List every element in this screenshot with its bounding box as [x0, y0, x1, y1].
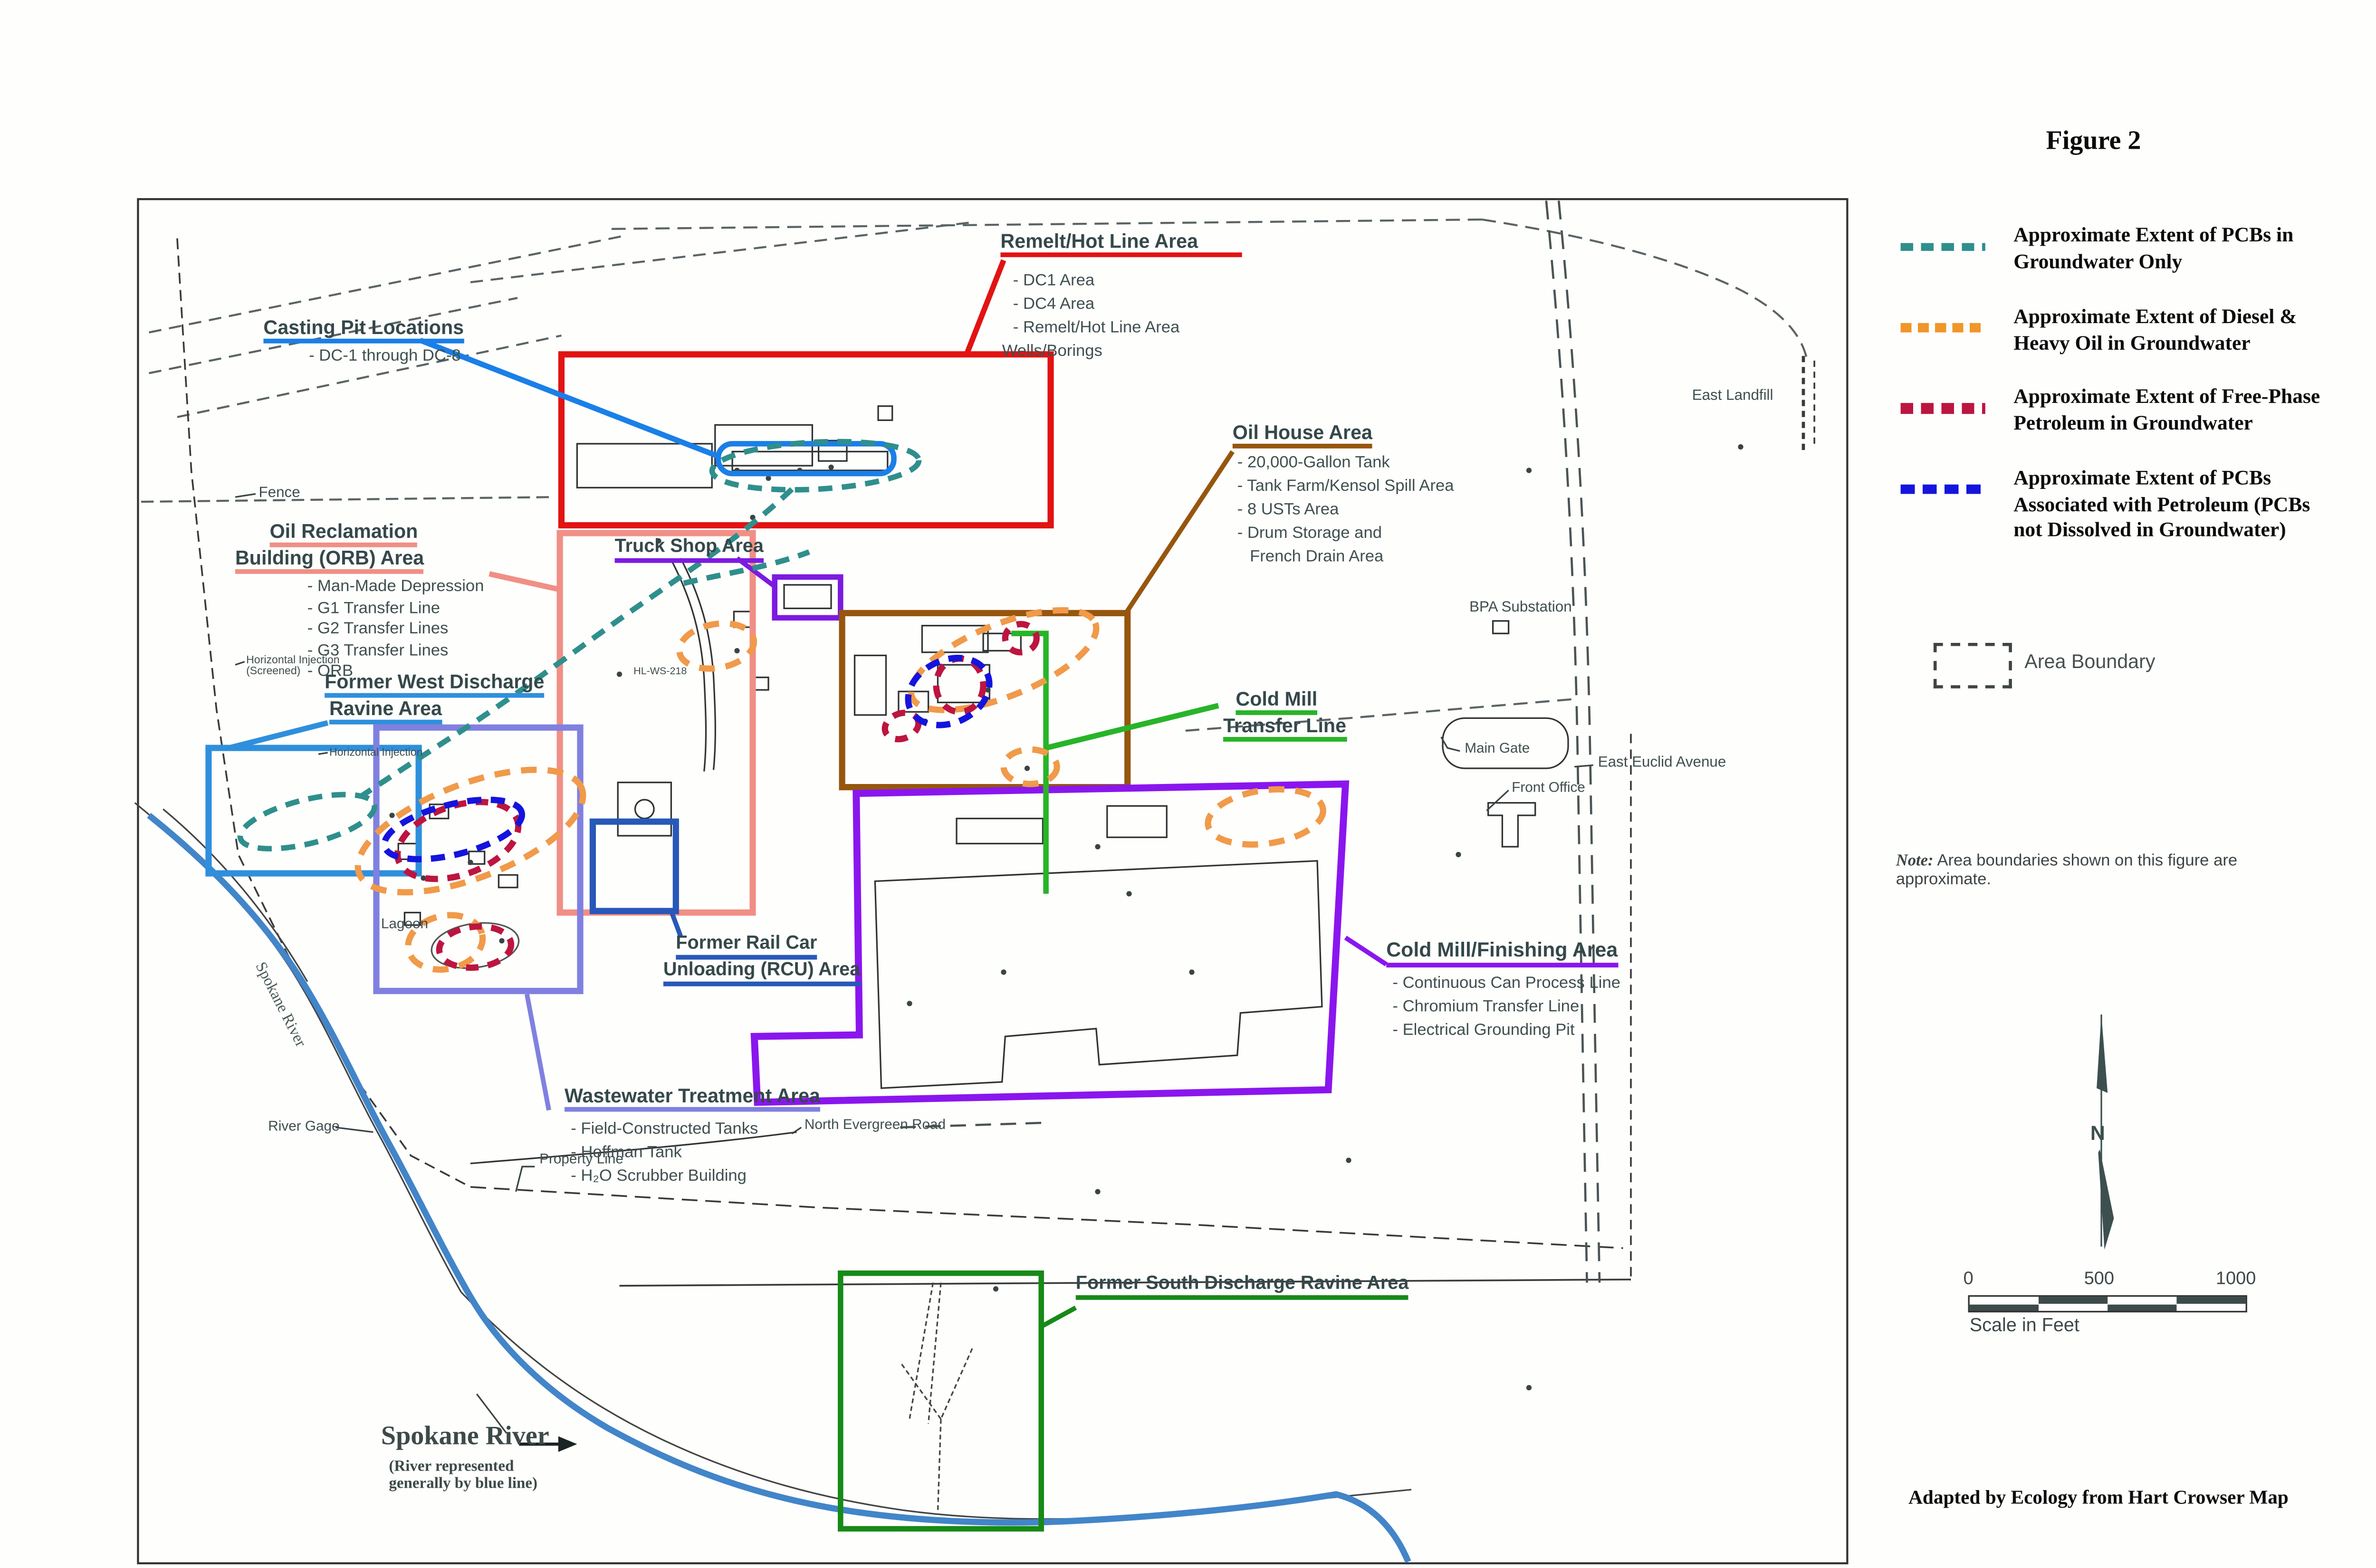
label-cold-mill-finishing: Cold Mill/Finishing Area: [1386, 939, 1618, 967]
map-border: [138, 199, 1847, 1563]
label-orb-line2: Building (ORB) Area: [235, 547, 424, 574]
label-cmt-line1: Cold Mill: [1236, 688, 1317, 716]
label-river-note: (River representedgenerally by blue line…: [389, 1458, 537, 1493]
legend-swatch-diesel: [1901, 323, 1985, 333]
cold-mill-transfer-line: [1012, 633, 1219, 894]
bullets-remelt: - DC1 Area - DC4 Area - Remelt/Hot Line …: [1013, 270, 1180, 364]
label-truck-shop: Truck Shop Area: [615, 536, 764, 563]
note-prefix: Note:: [1896, 853, 1934, 870]
orb-area-box: [560, 533, 753, 913]
property-lines: [177, 239, 1814, 1286]
label-horizontal-injection-2: Horizontal Injection: [329, 748, 422, 759]
plume-diesel-heavy-oil: [342, 590, 1326, 976]
river-banks: [135, 803, 1411, 1519]
label-south-discharge: Former South Discharge Ravine Area: [1076, 1273, 1409, 1300]
legend-swatch-free-phase: [1901, 403, 1985, 414]
north-label: N: [2090, 1123, 2105, 1144]
label-bpa-substation: BPA Substation: [1469, 601, 1572, 616]
legend-item-diesel: Approximate Extent of Diesel &Heavy Oil …: [2013, 304, 2376, 356]
legend-swatch-pcbs-petroleum: [1901, 485, 1985, 494]
site-roads: [470, 558, 1568, 1164]
legend-item-pcbs-petroleum: Approximate Extent of PCBsAssociated wit…: [2013, 466, 2376, 543]
label-hl-ws-218: HL-WS-218: [633, 668, 687, 679]
label-orb-line1: Oil Reclamation: [270, 521, 418, 548]
bullets-casting-pit: - DC-1 through DC-8: [309, 346, 461, 365]
label-river-gage: River Gage: [268, 1119, 339, 1134]
legend-item-pcbs-groundwater: Approximate Extent of PCBs inGroundwater…: [2013, 223, 2376, 275]
south-ravine-sketch: [902, 1282, 973, 1513]
remelt-hot-line-box: [561, 354, 1051, 526]
figure-title: Figure 2: [2007, 125, 2180, 157]
label-spokane-river: Spokane River: [381, 1421, 549, 1452]
label-west-line1: Former West Discharge: [325, 671, 544, 698]
label-rcu-line2: Unloading (RCU) Area: [663, 960, 860, 986]
label-west-line2: Ravine Area: [329, 698, 442, 725]
label-fence: Fence: [259, 486, 300, 502]
label-lagoon: Lagoon: [381, 918, 428, 932]
label-casting-pit: Casting Pit Locations: [263, 317, 464, 344]
bullets-oil-house: - 20,000-Gallon Tank- Tank Farm/Kensol S…: [1237, 451, 1454, 569]
south-discharge-box: [841, 1273, 1041, 1529]
legend-swatch-pcbs-groundwater: [1901, 243, 1985, 251]
credit-line: Adapted by Ecology from Hart Crowser Map: [1908, 1486, 2289, 1510]
scale-tick-500: 500: [2084, 1270, 2114, 1289]
area-boundary-swatch: [1934, 643, 2012, 688]
label-front-office: Front Office: [1512, 781, 1585, 795]
scale-label: Scale in Feet: [1970, 1316, 2079, 1336]
bullets-cold-mill-finishing: - Continuous Can Process Line - Chromium…: [1392, 972, 1620, 1043]
bullets-wastewater: - Field-Constructed Tanks- Hoffman Tank …: [571, 1118, 758, 1189]
label-east-landfill: East Landfill: [1692, 389, 1773, 404]
well-dots: [389, 444, 1743, 1390]
figure-2-site-map: Casting Pit Locations - DC-1 through DC-…: [0, 0, 2376, 1568]
scale-bar: [1968, 1295, 2247, 1312]
label-oil-house: Oil House Area: [1233, 422, 1372, 449]
map-note: Note: Area boundaries shown on this figu…: [1896, 851, 2335, 889]
label-east-euclid-avenue: East Euclid Avenue: [1598, 756, 1726, 772]
label-main-gate: Main Gate: [1465, 742, 1530, 756]
casting-pit-ring: [718, 444, 894, 474]
area-boundary-label: Area Boundary: [2024, 652, 2155, 673]
cold-mill-finishing-box: [754, 784, 1345, 1102]
scale-tick-0: 0: [1964, 1270, 1974, 1289]
label-north-evergreen-road: North Evergreen Road: [805, 1118, 946, 1133]
legend-item-free-phase: Approximate Extent of Free-PhasePetroleu…: [2013, 384, 2376, 436]
label-wastewater: Wastewater Treatment Area: [565, 1085, 820, 1112]
bullets-orb: - Man-Made Depression- G1 Transfer Line …: [307, 577, 484, 683]
label-remelt: Remelt/Hot Line Area: [1000, 230, 1242, 258]
scale-tick-1000: 1000: [2216, 1270, 2256, 1289]
spokane-river-line: [149, 815, 1408, 1562]
label-cmt-line2: Transfer Line: [1223, 715, 1346, 742]
label-rcu-line1: Former Rail Car: [676, 933, 817, 959]
